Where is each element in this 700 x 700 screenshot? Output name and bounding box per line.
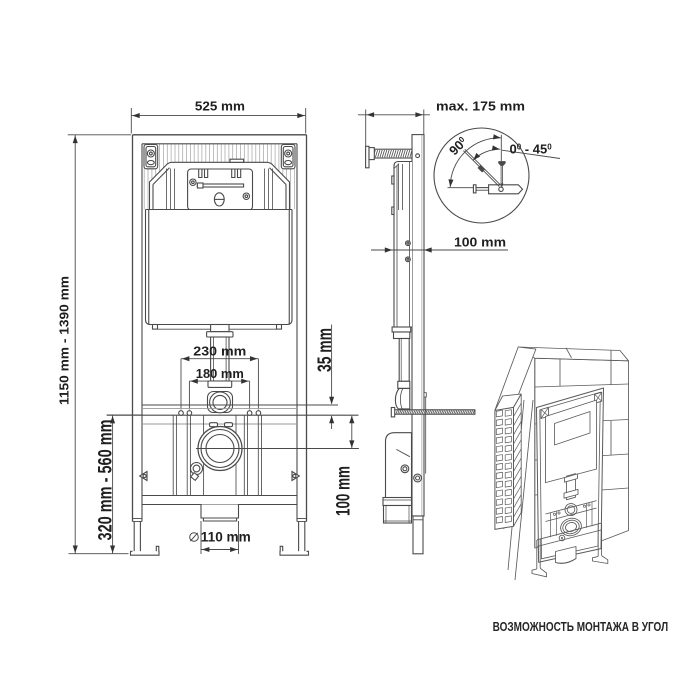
svg-text:110 mm: 110 mm bbox=[201, 529, 251, 544]
svg-text:100 mm: 100 mm bbox=[332, 466, 354, 516]
svg-text:180 mm: 180 mm bbox=[196, 366, 244, 381]
svg-text:320 mm - 560 mm: 320 mm - 560 mm bbox=[94, 420, 116, 541]
svg-text:525 mm: 525 mm bbox=[195, 99, 245, 114]
svg-text:max. 175 mm: max. 175 mm bbox=[436, 99, 525, 114]
svg-text:1150 mm - 1390 mm: 1150 mm - 1390 mm bbox=[57, 276, 72, 405]
svg-text:00 - 450: 00 - 450 bbox=[510, 142, 553, 157]
svg-text:35 mm: 35 mm bbox=[314, 328, 336, 372]
svg-text:ВОЗМОЖНОСТЬ МОНТАЖА В УГОЛ: ВОЗМОЖНОСТЬ МОНТАЖА В УГОЛ bbox=[493, 619, 668, 634]
svg-text:230 mm: 230 mm bbox=[193, 344, 246, 359]
svg-text:100 mm: 100 mm bbox=[454, 235, 506, 250]
